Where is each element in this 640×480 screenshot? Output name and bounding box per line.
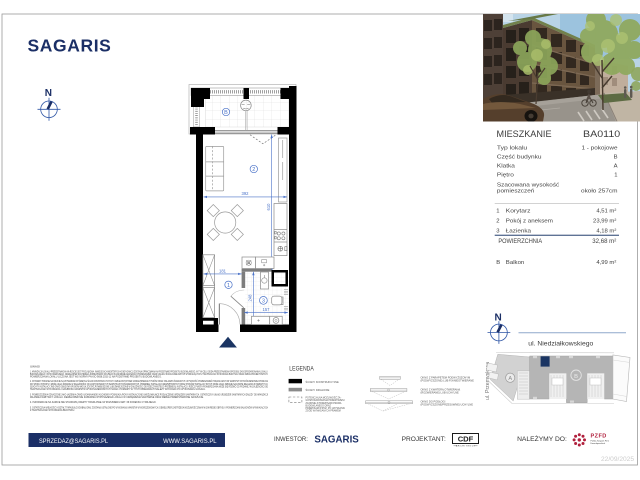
svg-text:SZACHTY INSTALACYJNE ORAZ OBUD: SZACHTY INSTALACYJNE ORAZ OBUDOWY PIONÓW… — [30, 385, 268, 388]
svg-text:BUDOWLANEGO I WYKONAWCZEGO. DE: BUDOWLANEGO I WYKONAWCZEGO. DEWELOPER ZA… — [30, 373, 268, 376]
svg-text:ul. Niedziałkowskiego: ul. Niedziałkowskiego — [528, 341, 594, 347]
svg-text:(ROZWIERANE) LUB UCHYLNE: (ROZWIERANE) LUB UCHYLNE — [421, 391, 459, 395]
svg-text:22/09/2025: 22/09/2025 — [601, 456, 634, 463]
svg-text:Piętro: Piętro — [497, 173, 515, 179]
svg-text:GOSPODAROWANIA PRZESTRZENI: GOSPODAROWANIA PRZESTRZENI — [306, 399, 345, 402]
svg-text:4,51 m²: 4,51 m² — [596, 209, 616, 215]
svg-text:Balkon: Balkon — [506, 260, 525, 266]
svg-text:PZFD: PZFD — [591, 434, 607, 440]
svg-text:CDF: CDF — [458, 435, 474, 444]
svg-text:4,99 m²: 4,99 m² — [596, 260, 616, 266]
svg-text:1 - pokojowe: 1 - pokojowe — [582, 145, 619, 151]
svg-text:A: A — [614, 164, 618, 170]
svg-text:ŚCIANY DZIAŁOWE: ŚCIANY DZIAŁOWE — [306, 387, 330, 392]
svg-text:BUDOWLANEGO ORAZ: BUDOWLANEGO ORAZ — [306, 404, 332, 407]
svg-text:248: 248 — [248, 294, 253, 302]
svg-text:pomieszczeń: pomieszczeń — [497, 189, 535, 195]
svg-text:1: 1 — [614, 173, 617, 179]
svg-text:3: 3 — [262, 299, 265, 305]
svg-text:PRZEPISAMI P.POŻ. PO UZYSKANIU: PRZEPISAMI P.POŻ. PO UZYSKANIU — [306, 407, 346, 410]
svg-text:N: N — [495, 313, 502, 324]
svg-text:INWESTOR:: INWESTOR: — [274, 437, 308, 443]
svg-text:181: 181 — [219, 268, 227, 273]
svg-text:NALEŻYMY DO:: NALEŻYMY DO: — [517, 436, 567, 443]
svg-text:157: 157 — [263, 307, 271, 312]
svg-text:23,99 m²: 23,99 m² — [593, 219, 616, 225]
svg-text:Łazienka: Łazienka — [506, 229, 532, 235]
svg-text:B: B — [224, 110, 228, 116]
svg-text:PROJEKTANT:: PROJEKTANT: — [402, 437, 447, 443]
svg-text:Typ lokalu: Typ lokalu — [497, 145, 527, 151]
svg-text:4,18 m²: 4,18 m² — [596, 229, 616, 235]
svg-text:32,68 m²: 32,68 m² — [592, 238, 616, 245]
svg-text:MIESZKANIE: MIESZKANIE — [497, 129, 552, 139]
svg-text:SAGARIS: SAGARIS — [28, 36, 112, 56]
svg-text:ŚCIANY KONSTRUKCYJNE: ŚCIANY KONSTRUKCYJNE — [306, 379, 340, 384]
svg-text:392: 392 — [242, 191, 250, 196]
svg-text:ZGÓD WYMAGANYCH PRAWEM: ZGÓD WYMAGANYCH PRAWEM — [306, 410, 341, 413]
svg-text:B: B — [614, 154, 618, 160]
svg-text:5. OSTATECZNA WIELKOŚĆ I KSZTA: 5. OSTATECZNA WIELKOŚĆ I KSZTAŁT TARASU/… — [30, 406, 268, 409]
svg-text:WWW.SAGARIS.PL: WWW.SAGARIS.PL — [163, 439, 217, 445]
svg-text:Z TECHNOLOGII WYKONANIA BUDYNK: Z TECHNOLOGII WYKONANIA BUDYNKU. — [30, 409, 75, 412]
svg-text:2. WYMIARY PODANE NA RZUCIE SĄ: 2. WYMIARY PODANE NA RZUCIE SĄ WYMIARAMI… — [30, 380, 268, 383]
svg-text:POWIERZCHNIA: POWIERZCHNIA — [498, 238, 543, 245]
svg-text:Klatka: Klatka — [497, 164, 516, 170]
svg-text:610: 610 — [266, 203, 271, 211]
svg-text:POWIERZCHNIA LOKALU LICZONA JE: POWIERZCHNIA LOKALU LICZONA JEST WG NORM… — [30, 376, 162, 379]
svg-text:1. ARANŻACJA LOKALU PRZEDSTAWI: 1. ARANŻACJA LOKALU PRZEDSTAWIONA NA RZU… — [30, 370, 268, 373]
svg-text:Polski Związek Firm: Polski Związek Firm — [591, 440, 610, 443]
svg-text:TECHNOLOGII WYKONANIA I GRUBOŚ: TECHNOLOGII WYKONANIA I GRUBOŚCI WARSTW … — [30, 388, 206, 391]
svg-text:ARCHITEKCI: ARCHITEKCI — [456, 445, 475, 448]
svg-text:około 257cm: około 257cm — [581, 189, 618, 195]
svg-text:Szacowana wysokość: Szacowana wysokość — [497, 183, 559, 189]
svg-text:POTENCJALNA MOŻLIWOŚĆ ZA-: POTENCJALNA MOŻLIWOŚĆ ZA- — [306, 397, 342, 400]
svg-text:Korytarz: Korytarz — [506, 209, 531, 215]
svg-text:1: 1 — [227, 283, 230, 289]
svg-text:WŁASNEJ NABYWCY LOKALU. DEWELO: WŁASNEJ NABYWCY LOKALU. DEWELOPER NIE ZA… — [30, 396, 204, 399]
svg-text:BA0110: BA0110 — [583, 129, 620, 139]
svg-text:SPRZEDAZ@SAGARIS.PL: SPRZEDAZ@SAGARIS.PL — [39, 439, 109, 445]
svg-text:3. POMIESZCZENIA OZNACZONE JAK: 3. POMIESZCZENIA OZNACZONE JAKO ŁAZIENKA… — [30, 394, 268, 397]
svg-text:1: 1 — [496, 209, 499, 215]
svg-text:Część budynku: Część budynku — [497, 154, 542, 160]
svg-text:ZGODNIE Z PRZEPISAMI PRAWA: ZGODNIE Z PRZEPISAMI PRAWA — [306, 402, 342, 405]
svg-text:3: 3 — [496, 229, 500, 235]
svg-text:A: A — [508, 376, 512, 382]
svg-text:B: B — [574, 374, 578, 380]
svg-text:Pokój z aneksem: Pokój z aneksem — [506, 219, 553, 225]
svg-text:DO SPODU STROPU I MOŻE ULEC ZM: DO SPODU STROPU I MOŻE ULEC ZMIANIE W ZA… — [30, 383, 268, 386]
svg-text:Deweloperskich: Deweloperskich — [591, 442, 607, 445]
svg-text:4. INFORMACJE NA KARCIE NIE ST: 4. INFORMACJE NA KARCIE NIE STANOWIĄ OFE… — [30, 401, 157, 404]
svg-text:UWAGI: UWAGI — [30, 364, 40, 368]
svg-text:N: N — [45, 88, 52, 99]
svg-text:B: B — [496, 260, 500, 266]
svg-text:2: 2 — [252, 167, 255, 173]
svg-text:LEGENDA: LEGENDA — [289, 366, 314, 373]
svg-text:SAGARIS: SAGARIS — [314, 434, 359, 445]
svg-text:2: 2 — [496, 219, 499, 225]
